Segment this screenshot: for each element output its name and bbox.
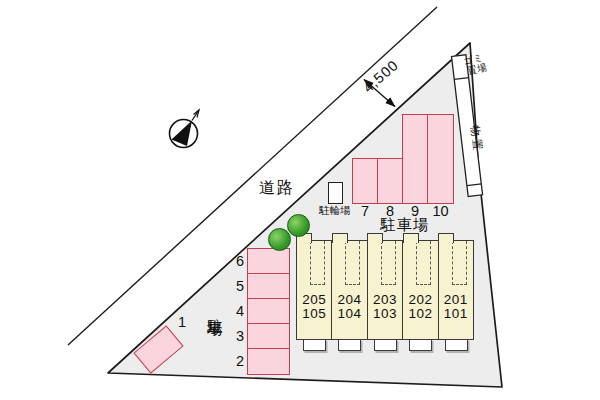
space-number-1: 1 [174,314,190,330]
building-unit-201: 201101 [439,241,473,339]
stairs-dashed [416,241,431,285]
unit-entrance-porch [338,339,361,351]
space-number-6: 6 [228,248,244,274]
space-number-3: 3 [228,323,244,349]
bicycle-shed [328,182,343,204]
site-plan-drawing: 4,500 物置 ゴミ 置場 [0,0,600,400]
unit-entrance-porch [374,339,397,351]
road-label: 道路 [259,178,295,199]
parking-space-2 [247,348,290,375]
space-number-4: 4 [228,298,244,324]
building-unit-202: 202102 [403,241,438,339]
unit-label: 205105 [297,293,331,320]
parking-area-west-label: 駐車場 [204,306,225,311]
stairs-dashed [452,241,467,285]
stairs-dashed [381,241,396,285]
site-plan: 4,500 物置 ゴミ 置場 道路 7 8 9 10 駐車場 [0,0,600,400]
parking-space-4 [247,298,290,325]
unit-label: 203103 [368,293,402,320]
tree-icon [287,214,310,237]
unit-label: 201101 [439,293,473,320]
parking-space-8 [377,158,404,204]
north-compass-icon [170,110,200,148]
unit-label: 202102 [403,293,437,320]
tree-icon [268,228,291,251]
building-roof-tab [332,233,348,243]
parking-space-3 [247,323,290,350]
parking-space-6 [247,248,290,275]
building-unit-203: 203103 [368,241,403,339]
building: 205105 204104 203103 202102 201101 [296,240,474,340]
parking-space-7 [352,158,379,204]
dimension-label: 4,500 [360,57,402,96]
parking-space-10 [427,114,454,204]
parking-area-north-label: 駐車場 [364,215,446,236]
parking-space-9 [402,114,429,204]
stairs-dashed [345,241,360,285]
bicycle-shed-label: 駐輪場 [312,204,358,218]
building-unit-205: 205105 [297,241,332,339]
unit-label: 204104 [332,293,366,320]
unit-entrance-porch [409,339,432,351]
unit-entrance-porch [445,339,468,351]
unit-entrance-porch [303,339,326,351]
space-number-2: 2 [228,348,244,374]
parking-space-5 [247,273,290,300]
space-number-5: 5 [228,273,244,299]
building-unit-204: 204104 [332,241,367,339]
stairs-dashed [310,241,325,285]
